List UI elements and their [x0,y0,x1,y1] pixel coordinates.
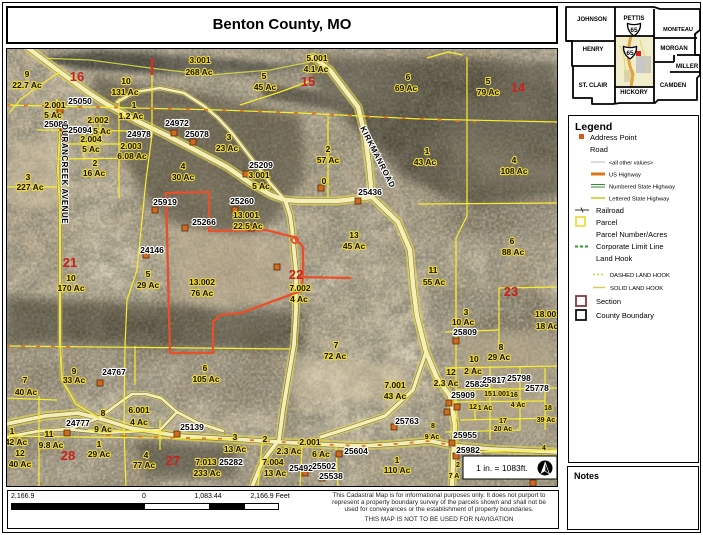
svg-text:MILLER: MILLER [676,64,699,70]
svg-text:25078: 25078 [185,129,209,139]
svg-text:10 Ac: 10 Ac [452,317,475,327]
svg-text:14: 14 [511,80,526,95]
svg-text:17: 17 [499,418,507,425]
svg-text:2: 2 [326,144,331,154]
svg-text:268 Ac: 268 Ac [185,67,212,77]
svg-text:5.001: 5.001 [306,53,328,63]
svg-text:4: 4 [181,161,186,171]
svg-text:6.08 Ac: 6.08 Ac [117,151,147,161]
svg-text:4.1 Ac: 4.1 Ac [304,64,329,74]
svg-text:76 Ac: 76 Ac [191,288,214,298]
svg-text:16: 16 [510,392,518,399]
svg-text:43 Ac: 43 Ac [384,391,407,401]
svg-text:4: 4 [144,450,149,460]
svg-text:170 Ac: 170 Ac [57,283,84,293]
svg-text:DASHED LAND HOOK: DASHED LAND HOOK [610,273,670,279]
svg-text:39 Ac: 39 Ac [537,417,556,424]
svg-text:131 Ac: 131 Ac [111,87,138,97]
svg-text:1.2 Ac: 1.2 Ac [119,111,144,121]
svg-text:20 Ac: 20 Ac [494,426,513,433]
svg-text:Legend: Legend [575,121,612,133]
svg-text:4 Ac: 4 Ac [290,294,308,304]
svg-text:25982: 25982 [456,445,480,455]
svg-text:3: 3 [233,432,238,442]
svg-text:5: 5 [262,71,267,81]
svg-text:25763: 25763 [395,416,419,426]
svg-text:21: 21 [63,255,77,270]
svg-text:County Boundary: County Boundary [596,311,654,320]
svg-text:2.3 Ac: 2.3 Ac [434,378,459,388]
svg-text:7.013: 7.013 [195,457,217,467]
svg-text:8: 8 [101,408,106,418]
svg-text:Land Hook: Land Hook [596,254,633,263]
svg-text:1: 1 [425,146,430,156]
svg-text:9: 9 [25,69,30,79]
svg-text:29 Ac: 29 Ac [488,352,511,362]
svg-text:DURANCREEK AVENUE: DURANCREEK AVENUE [60,124,69,224]
svg-text:65: 65 [630,27,638,34]
svg-text:65: 65 [626,50,634,57]
svg-text:2.003: 2.003 [120,141,142,151]
svg-text:Parcel Number/Acres: Parcel Number/Acres [596,230,668,239]
svg-text:24978: 24978 [127,129,151,139]
svg-text:<all other values>: <all other values> [609,161,653,167]
svg-text:15: 15 [484,391,492,398]
svg-text:5: 5 [486,76,491,86]
svg-text:25266: 25266 [192,217,216,227]
svg-text:55 Ac: 55 Ac [423,277,446,287]
svg-text:2 Ac: 2 Ac [464,366,482,376]
svg-text:10: 10 [469,354,479,364]
svg-text:13 Ac: 13 Ac [264,468,287,478]
svg-text:23 Ac: 23 Ac [216,143,239,153]
svg-text:25502: 25502 [312,461,336,471]
svg-text:Address Point: Address Point [590,133,638,142]
svg-text:25050: 25050 [68,96,92,106]
svg-text:5: 5 [146,269,151,279]
svg-text:7.002: 7.002 [289,283,311,293]
svg-text:25260: 25260 [230,196,254,206]
svg-text:HICKORY: HICKORY [620,90,647,96]
svg-text:5 Ac: 5 Ac [252,181,270,191]
svg-text:25604: 25604 [344,446,368,456]
svg-text:MONITEAU: MONITEAU [663,27,693,33]
svg-text:24767: 24767 [102,367,126,377]
svg-text:3.001: 3.001 [189,55,211,65]
svg-text:25778: 25778 [525,383,549,393]
svg-text:2.001: 2.001 [44,100,66,110]
svg-text:4: 4 [512,155,517,165]
svg-text:25094: 25094 [68,125,92,135]
svg-text:72 Ac: 72 Ac [324,351,347,361]
svg-text:22: 22 [289,267,303,282]
svg-text:3: 3 [227,132,232,142]
svg-text:105 Ac: 105 Ac [192,374,219,384]
svg-text:7 A: 7 A [449,473,460,480]
svg-text:1 Ac: 1 Ac [478,405,493,412]
svg-text:22.7 Ac: 22.7 Ac [12,80,42,90]
svg-text:25538: 25538 [319,471,343,481]
svg-text:9 Ac: 9 Ac [425,434,440,441]
svg-text:25919: 25919 [153,197,177,207]
svg-text:4 Ac: 4 Ac [130,417,148,427]
svg-text:25955: 25955 [453,430,477,440]
svg-text:2: 2 [456,462,460,469]
svg-text:24146: 24146 [140,245,164,255]
svg-text:25209: 25209 [249,160,273,170]
svg-text:33 Ac: 33 Ac [63,375,86,385]
svg-text:ST. CLAIR: ST. CLAIR [579,83,608,89]
svg-text:3: 3 [464,307,469,317]
svg-text:29 Ac: 29 Ac [137,280,160,290]
svg-text:6: 6 [510,236,515,246]
svg-text:1.001: 1.001 [492,391,510,398]
svg-text:69 Ac: 69 Ac [395,83,418,93]
svg-text:4 Ac: 4 Ac [511,402,526,409]
svg-text:US Highway: US Highway [609,173,641,179]
svg-text:2: 2 [93,158,98,168]
svg-text:SOLID LAND HOOK: SOLID LAND HOOK [610,286,663,292]
svg-text:5 Ac: 5 Ac [82,144,100,154]
svg-text:1: 1 [97,439,102,449]
svg-text:Numbered State Highway: Numbered State Highway [609,185,675,191]
svg-text:43 Ac: 43 Ac [414,157,437,167]
svg-text:25809: 25809 [453,327,477,337]
svg-text:42 Ac: 42 Ac [6,437,27,447]
svg-text:JOHNSON: JOHNSON [577,17,607,23]
svg-text:6.001: 6.001 [128,405,150,415]
svg-text:45 Ac: 45 Ac [343,241,366,251]
svg-text:25798: 25798 [507,373,531,383]
svg-text:27: 27 [166,453,180,468]
svg-text:7.004: 7.004 [262,457,284,467]
svg-text:16 Ac: 16 Ac [83,168,106,178]
svg-text:6: 6 [406,72,411,82]
svg-text:28: 28 [61,448,75,463]
svg-text:Road: Road [590,145,608,154]
svg-text:13.001: 13.001 [233,210,259,220]
svg-text:23: 23 [504,284,518,299]
svg-text:18: 18 [544,405,552,412]
svg-text:110 Ac: 110 Ac [384,465,411,475]
svg-text:233 Ac: 233 Ac [193,468,220,478]
svg-text:2.3 Ac: 2.3 Ac [277,446,302,456]
svg-text:24972: 24972 [165,118,189,128]
svg-text:1: 1 [395,455,400,465]
svg-text:25909: 25909 [451,390,475,400]
svg-text:18 Ac: 18 Ac [536,321,558,331]
svg-text:6 Ac: 6 Ac [312,449,330,459]
svg-text:12: 12 [469,404,477,411]
svg-text:Railroad: Railroad [596,206,624,215]
svg-text:13 Ac: 13 Ac [224,444,247,454]
svg-text:25817: 25817 [482,375,506,385]
svg-text:9 Ac: 9 Ac [94,424,112,434]
svg-text:25282: 25282 [219,457,243,467]
svg-text:Parcel: Parcel [596,218,618,227]
svg-text:40 Ac: 40 Ac [15,387,38,397]
svg-text:2.002: 2.002 [87,115,109,125]
svg-text:Section: Section [596,297,621,306]
svg-text:11: 11 [45,429,54,439]
svg-text:24777: 24777 [66,418,90,428]
svg-text:1 in. = 1083ft.: 1 in. = 1083ft. [476,463,528,473]
svg-text:16: 16 [70,69,84,84]
svg-text:12: 12 [446,367,456,377]
svg-text:10: 10 [66,273,76,283]
svg-text:77 Ac: 77 Ac [133,460,156,470]
svg-text:2.004: 2.004 [80,134,102,144]
svg-text:227 Ac: 227 Ac [16,182,43,192]
svg-text:57 Ac: 57 Ac [317,155,340,165]
svg-text:12: 12 [15,448,25,458]
svg-text:10: 10 [121,76,131,86]
svg-text:7: 7 [23,375,28,385]
svg-text:8: 8 [431,423,435,430]
svg-text:22.5 Ac: 22.5 Ac [233,221,263,231]
svg-text:0: 0 [322,176,327,186]
svg-text:4: 4 [542,445,546,452]
svg-text:13: 13 [349,230,359,240]
svg-text:40 Ac: 40 Ac [9,459,32,469]
svg-text:1: 1 [132,100,137,110]
svg-text:25492: 25492 [289,463,313,473]
svg-text:29 Ac: 29 Ac [88,449,111,459]
svg-text:25139: 25139 [180,422,204,432]
svg-text:8: 8 [499,342,504,352]
svg-text:3.001: 3.001 [248,170,270,180]
svg-text:1: 1 [10,426,15,436]
svg-text:79 Ac: 79 Ac [477,87,500,97]
svg-text:HENRY: HENRY [583,47,604,53]
svg-text:2: 2 [263,434,268,444]
svg-text:7: 7 [334,340,339,350]
svg-text:11: 11 [429,265,438,275]
svg-text:88 Ac: 88 Ac [502,247,525,257]
svg-text:2.001: 2.001 [299,437,321,447]
svg-text:Lettered State Highway: Lettered State Highway [609,197,669,203]
svg-text:3: 3 [26,172,31,182]
svg-text:25436: 25436 [358,187,382,197]
svg-text:PETTIS: PETTIS [623,16,644,22]
svg-text:45 Ac: 45 Ac [254,82,277,92]
svg-text:30 Ac: 30 Ac [172,172,195,182]
svg-text:MORGAN: MORGAN [660,46,687,52]
svg-text:Corporate Limit Line: Corporate Limit Line [596,242,664,251]
svg-text:6: 6 [203,363,208,373]
svg-text:15: 15 [301,74,315,89]
svg-text:13.002: 13.002 [189,277,215,287]
svg-text:7.001: 7.001 [384,380,406,390]
svg-text:18.001: 18.001 [535,309,558,319]
svg-text:108 Ac: 108 Ac [500,166,527,176]
svg-text:CAMDEN: CAMDEN [660,83,686,89]
